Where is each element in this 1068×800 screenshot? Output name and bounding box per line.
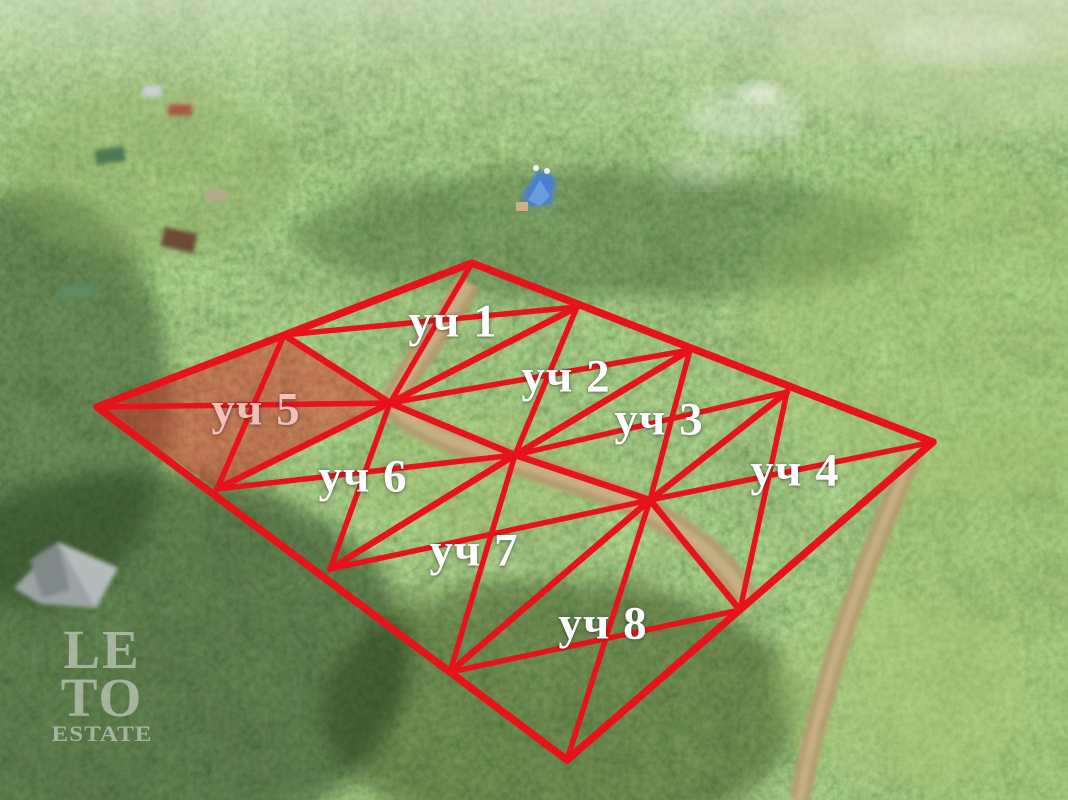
plot-label-2: уч 2	[521, 354, 610, 401]
plot-label-8: уч 8	[558, 601, 647, 648]
plot-label-4: уч 4	[750, 448, 839, 495]
plot-label-5: уч 5	[211, 387, 300, 434]
plot-label-1: уч 1	[408, 299, 497, 346]
watermark-line-2: TO	[50, 674, 154, 722]
tan-roof	[205, 190, 227, 201]
watermark-line-3: ESTATE	[50, 722, 154, 748]
light-roof	[143, 86, 161, 96]
aerial-photo-land-plots: уч 1 уч 2 уч 3 уч 4 уч 5 уч 6 уч 7 уч 8 …	[0, 0, 1068, 800]
green-roof-2	[59, 284, 94, 301]
plot-label-6: уч 6	[318, 454, 407, 501]
red-roof	[168, 104, 192, 116]
plot-label-7: уч 7	[429, 528, 518, 575]
plot-label-3: уч 3	[614, 397, 703, 444]
watermark-logo: LE TO ESTATE	[50, 626, 154, 750]
